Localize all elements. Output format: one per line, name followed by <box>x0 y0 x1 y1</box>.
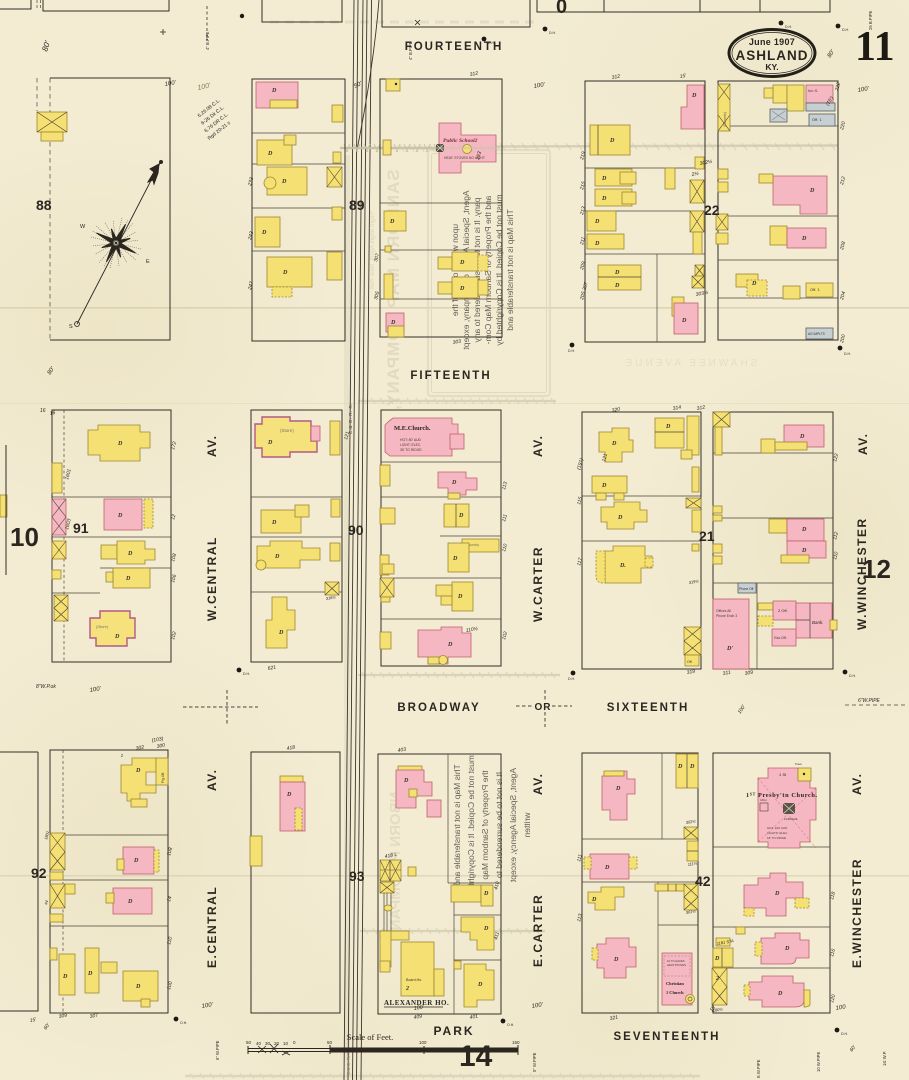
svg-text:C.& O. R. R.: C.& O. R. R. <box>346 1050 351 1075</box>
svg-text:D: D <box>751 281 757 287</box>
svg-text:20: 20 <box>274 1041 280 1046</box>
svg-text:D: D <box>389 219 395 225</box>
svg-text:D: D <box>261 230 267 236</box>
svg-text:40: 40 <box>256 1041 262 1046</box>
svg-text:Tower: Tower <box>795 762 802 766</box>
svg-text:D: D <box>774 891 780 897</box>
svg-text:D: D <box>271 88 277 94</box>
svg-text:21: 21 <box>699 528 715 544</box>
svg-text:Off. 1: Off. 1 <box>810 287 820 292</box>
svg-text:E: E <box>146 259 150 265</box>
svg-text:12: 12 <box>862 554 891 584</box>
svg-text:Off. 1: Off. 1 <box>812 117 822 122</box>
svg-text:D: D <box>390 320 396 326</box>
svg-text:D: D <box>615 786 621 792</box>
svg-text:D: D <box>271 520 277 526</box>
svg-text:AV.: AV. <box>856 432 870 455</box>
svg-text:1st W.P.: 1st W.P. <box>882 1051 887 1066</box>
svg-text:D: D <box>282 270 288 276</box>
svg-text:D: D <box>614 270 620 276</box>
svg-text:SIXTEENTH: SIXTEENTH <box>607 702 690 714</box>
svg-text:the Property of Sanborn Map: the Property of Sanborn Map <box>480 770 490 879</box>
svg-text:M.E.Church.: M.E.Church. <box>394 425 431 432</box>
svg-text:D: D <box>601 483 607 489</box>
svg-text:D: D <box>594 241 600 247</box>
svg-text:5" W.PIPE: 5" W.PIPE <box>532 1052 537 1072</box>
svg-text:D: D <box>127 899 133 905</box>
svg-text:6" W.PIPE: 6" W.PIPE <box>215 1040 220 1060</box>
svg-text:D: D <box>114 634 120 640</box>
svg-text:4" B.PIPE: 4" B.PIPE <box>205 31 210 50</box>
svg-text:D.: D. <box>619 563 626 569</box>
svg-text:HGT: 100' AUD: HGT: 100' AUD <box>767 826 788 830</box>
svg-text:50: 50 <box>246 1040 252 1045</box>
svg-text:D: D <box>483 891 489 897</box>
svg-text:D.H.: D.H. <box>243 672 250 676</box>
svg-text:Phone Off: Phone Off <box>739 587 753 591</box>
svg-text:D: D <box>614 283 620 289</box>
svg-text:D: D <box>809 188 815 194</box>
svg-text:D: D <box>477 982 483 988</box>
svg-text:10: 10 <box>10 522 39 552</box>
svg-text:D: D <box>665 424 671 430</box>
svg-text:8"W.P.ok: 8"W.P.ok <box>36 684 56 690</box>
svg-text:W.CARTER: W.CARTER <box>531 546 545 622</box>
svg-text:D.H.: D.H. <box>488 41 495 45</box>
svg-text:D: D <box>777 991 783 997</box>
svg-text:Christian: Christian <box>666 981 684 986</box>
svg-text:O.H.: O.H. <box>180 1021 187 1025</box>
svg-text:26 B.PIPE: 26 B.PIPE <box>868 10 873 30</box>
svg-text:C.& O. R. R.: C.& O. R. R. <box>348 403 353 434</box>
svg-text:0: 0 <box>556 0 567 18</box>
svg-text:LIGHT: ELEC.: LIGHT: ELEC. <box>400 443 421 447</box>
svg-text:93: 93 <box>349 868 365 884</box>
svg-text:2: 2 <box>715 976 719 982</box>
svg-text:90: 90 <box>348 522 364 538</box>
svg-text:D: D <box>617 515 623 521</box>
svg-text:22: 22 <box>704 202 720 218</box>
svg-text:D: D <box>403 778 409 784</box>
svg-text:FURNACE: FURNACE <box>784 817 798 821</box>
svg-text:D: D <box>452 556 458 562</box>
svg-text:PARK: PARK <box>433 1024 474 1038</box>
svg-text:S: S <box>69 324 73 330</box>
svg-text:D: D <box>281 179 287 185</box>
svg-text:Offices All: Offices All <box>716 609 731 613</box>
svg-text:ASHLAND: ASHLAND <box>736 48 809 63</box>
svg-text:must not be Copied. It is Copy: must not be Copied. It is Copyrighted <box>466 755 476 895</box>
svg-text:D: D <box>801 527 807 533</box>
svg-text:100: 100 <box>419 1040 427 1045</box>
svg-text:D: D <box>784 946 790 952</box>
svg-text:HEAT:STOVES: HEAT:STOVES <box>667 963 686 967</box>
svg-text:D: D <box>594 219 600 225</box>
svg-text:D: D <box>447 642 453 648</box>
svg-text:6"W.PIPE: 6"W.PIPE <box>858 698 881 704</box>
svg-text:D: D <box>691 93 697 99</box>
svg-text:Scale of Feet.: Scale of Feet. <box>347 1032 394 1042</box>
svg-text:D: D <box>801 548 807 554</box>
svg-text:D: D <box>613 957 619 963</box>
svg-text:D: D <box>483 926 489 932</box>
svg-text:18' TO RIDGE: 18' TO RIDGE <box>767 836 786 840</box>
svg-text:92: 92 <box>31 865 47 881</box>
svg-text:Board.Ho.: Board.Ho. <box>406 978 422 982</box>
svg-text:D: D <box>677 764 683 770</box>
svg-text:Inc.S.: Inc.S. <box>808 88 818 93</box>
svg-text:D: D <box>801 236 807 242</box>
svg-text:35' TO RIDGE.: 35' TO RIDGE. <box>400 448 423 452</box>
svg-text:D': D' <box>726 646 733 652</box>
svg-text:D: D <box>601 196 607 202</box>
svg-text:D: D <box>286 792 292 798</box>
svg-text:HGT: 80' AUD: HGT: 80' AUD <box>400 438 422 442</box>
svg-text:written: written <box>522 811 532 837</box>
svg-text:D.H.: D.H. <box>568 677 575 681</box>
svg-text:(Store): (Store) <box>96 624 109 629</box>
svg-text:OR: OR <box>535 702 552 713</box>
svg-text:It is not to be surrendered to: It is not to be surrendered to <box>494 772 504 879</box>
svg-text:W.CENTRAL: W.CENTRAL <box>205 536 219 621</box>
svg-text:Agent, Special Agency, except: Agent, Special Agency, except <box>508 768 518 883</box>
svg-text:50: 50 <box>327 1040 333 1045</box>
svg-text:4" B.PIPE: 4" B.PIPE <box>408 41 413 60</box>
svg-text:D: D <box>799 434 805 440</box>
svg-text:D: D <box>601 176 607 182</box>
svg-text:E.CARTER: E.CARTER <box>531 894 545 967</box>
svg-text:E.CENTRAL: E.CENTRAL <box>205 886 219 968</box>
svg-text:D: D <box>117 513 123 519</box>
svg-text:AV.: AV. <box>205 434 219 457</box>
svg-text:Gro.Off.: Gro.Off. <box>774 636 787 640</box>
svg-text:SHAWNEE AVENUE: SHAWNEE AVENUE <box>623 358 758 369</box>
svg-text:D.H.: D.H. <box>568 349 575 353</box>
svg-text:D: D <box>714 956 720 962</box>
svg-text:W: W <box>80 224 86 230</box>
svg-text:D.H.: D.H. <box>844 352 851 356</box>
svg-text:AV.: AV. <box>531 772 545 795</box>
svg-text:D: D <box>127 551 133 557</box>
svg-text:D.H.: D.H. <box>849 674 856 678</box>
svg-text:91: 91 <box>73 520 89 536</box>
svg-text:89: 89 <box>349 197 365 213</box>
svg-text:AV.: AV. <box>850 772 864 795</box>
svg-text:D: D <box>604 865 610 871</box>
svg-text:D: D <box>459 286 465 292</box>
svg-text:88: 88 <box>36 197 52 213</box>
svg-text:O.H.: O.H. <box>507 1023 514 1027</box>
svg-text:D.H.: D.H. <box>841 1032 848 1036</box>
svg-text:(Carpets): (Carpets) <box>723 112 727 127</box>
svg-text:SEVENTEENTH: SEVENTEENTH <box>614 1031 721 1043</box>
svg-text:June 1907: June 1907 <box>749 37 795 47</box>
svg-text:E.WINCHESTER: E.WINCHESTER <box>850 858 864 968</box>
svg-text:D: D <box>267 151 273 157</box>
svg-text:D: D <box>591 897 597 903</box>
svg-text:D: D <box>451 480 457 486</box>
svg-text:2: 2 <box>405 986 409 992</box>
svg-text:E.W.PIPE: E.W.PIPE <box>756 1059 761 1078</box>
svg-text:16: 16 <box>40 408 46 414</box>
svg-text:D: D <box>133 858 139 864</box>
svg-text:150: 150 <box>512 1040 520 1045</box>
svg-text:This Map is not transferable a: This Map is not transferable and <box>505 209 515 331</box>
svg-text:Phone Exch 3: Phone Exch 3 <box>716 614 737 618</box>
svg-text:30: 30 <box>265 1041 271 1046</box>
svg-text:Ptg.Off.: Ptg.Off. <box>161 772 165 783</box>
svg-text:AV.: AV. <box>531 434 545 457</box>
svg-text:D: D <box>681 318 687 324</box>
svg-text:D: D <box>135 768 141 774</box>
svg-text:D: D <box>135 984 141 990</box>
svg-text:D: D <box>611 441 617 447</box>
svg-text:KY.: KY. <box>765 62 778 72</box>
svg-text:AV.: AV. <box>205 768 219 791</box>
svg-text:D: D <box>457 594 463 600</box>
svg-text:D: D <box>458 513 464 519</box>
svg-text:D: D <box>689 764 695 770</box>
svg-text:11: 11 <box>855 24 895 70</box>
svg-text:1 Church: 1 Church <box>666 990 684 995</box>
svg-text:D.H.: D.H. <box>842 28 849 32</box>
svg-text:AG IMPLTS: AG IMPLTS <box>808 332 825 336</box>
svg-text:D.H.: D.H. <box>785 25 792 29</box>
svg-text:D: D <box>278 630 284 636</box>
svg-text:D.H.: D.H. <box>549 31 556 35</box>
svg-text:Off.: Off. <box>687 660 693 664</box>
svg-text:D: D <box>87 971 93 977</box>
svg-text:D: D <box>62 974 68 980</box>
svg-text:(Store): (Store) <box>280 428 294 433</box>
svg-text:1 St: 1 St <box>779 772 787 777</box>
svg-text:Bank.: Bank. <box>812 620 824 625</box>
svg-text:2 Off.: 2 Off. <box>778 608 788 613</box>
svg-text:D: D <box>125 576 131 582</box>
svg-text:BROADWAY: BROADWAY <box>397 702 480 714</box>
svg-text:D: D <box>274 554 280 560</box>
svg-text:10 W.PIPE: 10 W.PIPE <box>816 1052 821 1072</box>
svg-text:D: D <box>459 260 465 266</box>
svg-text:FIFTEENTH: FIFTEENTH <box>410 370 491 382</box>
svg-text:*Right Angle Agent, New York: *Right Angle Agent, New York <box>370 211 376 291</box>
svg-text:10: 10 <box>283 1041 289 1046</box>
svg-text:42: 42 <box>695 873 711 889</box>
svg-text:This Map is not transferable a: This Map is not transferable and <box>452 764 462 886</box>
svg-text:LIGHTS: ELEC.: LIGHTS: ELEC. <box>767 831 788 835</box>
svg-text:14: 14 <box>459 1040 493 1073</box>
svg-text:Public School2: Public School2 <box>443 138 478 144</box>
svg-text:1ST Presby'tn Church.: 1ST Presby'tn Church. <box>746 792 818 800</box>
svg-text:D: D <box>117 441 123 447</box>
svg-text:D: D <box>609 138 615 144</box>
svg-text:D: D <box>267 440 273 446</box>
